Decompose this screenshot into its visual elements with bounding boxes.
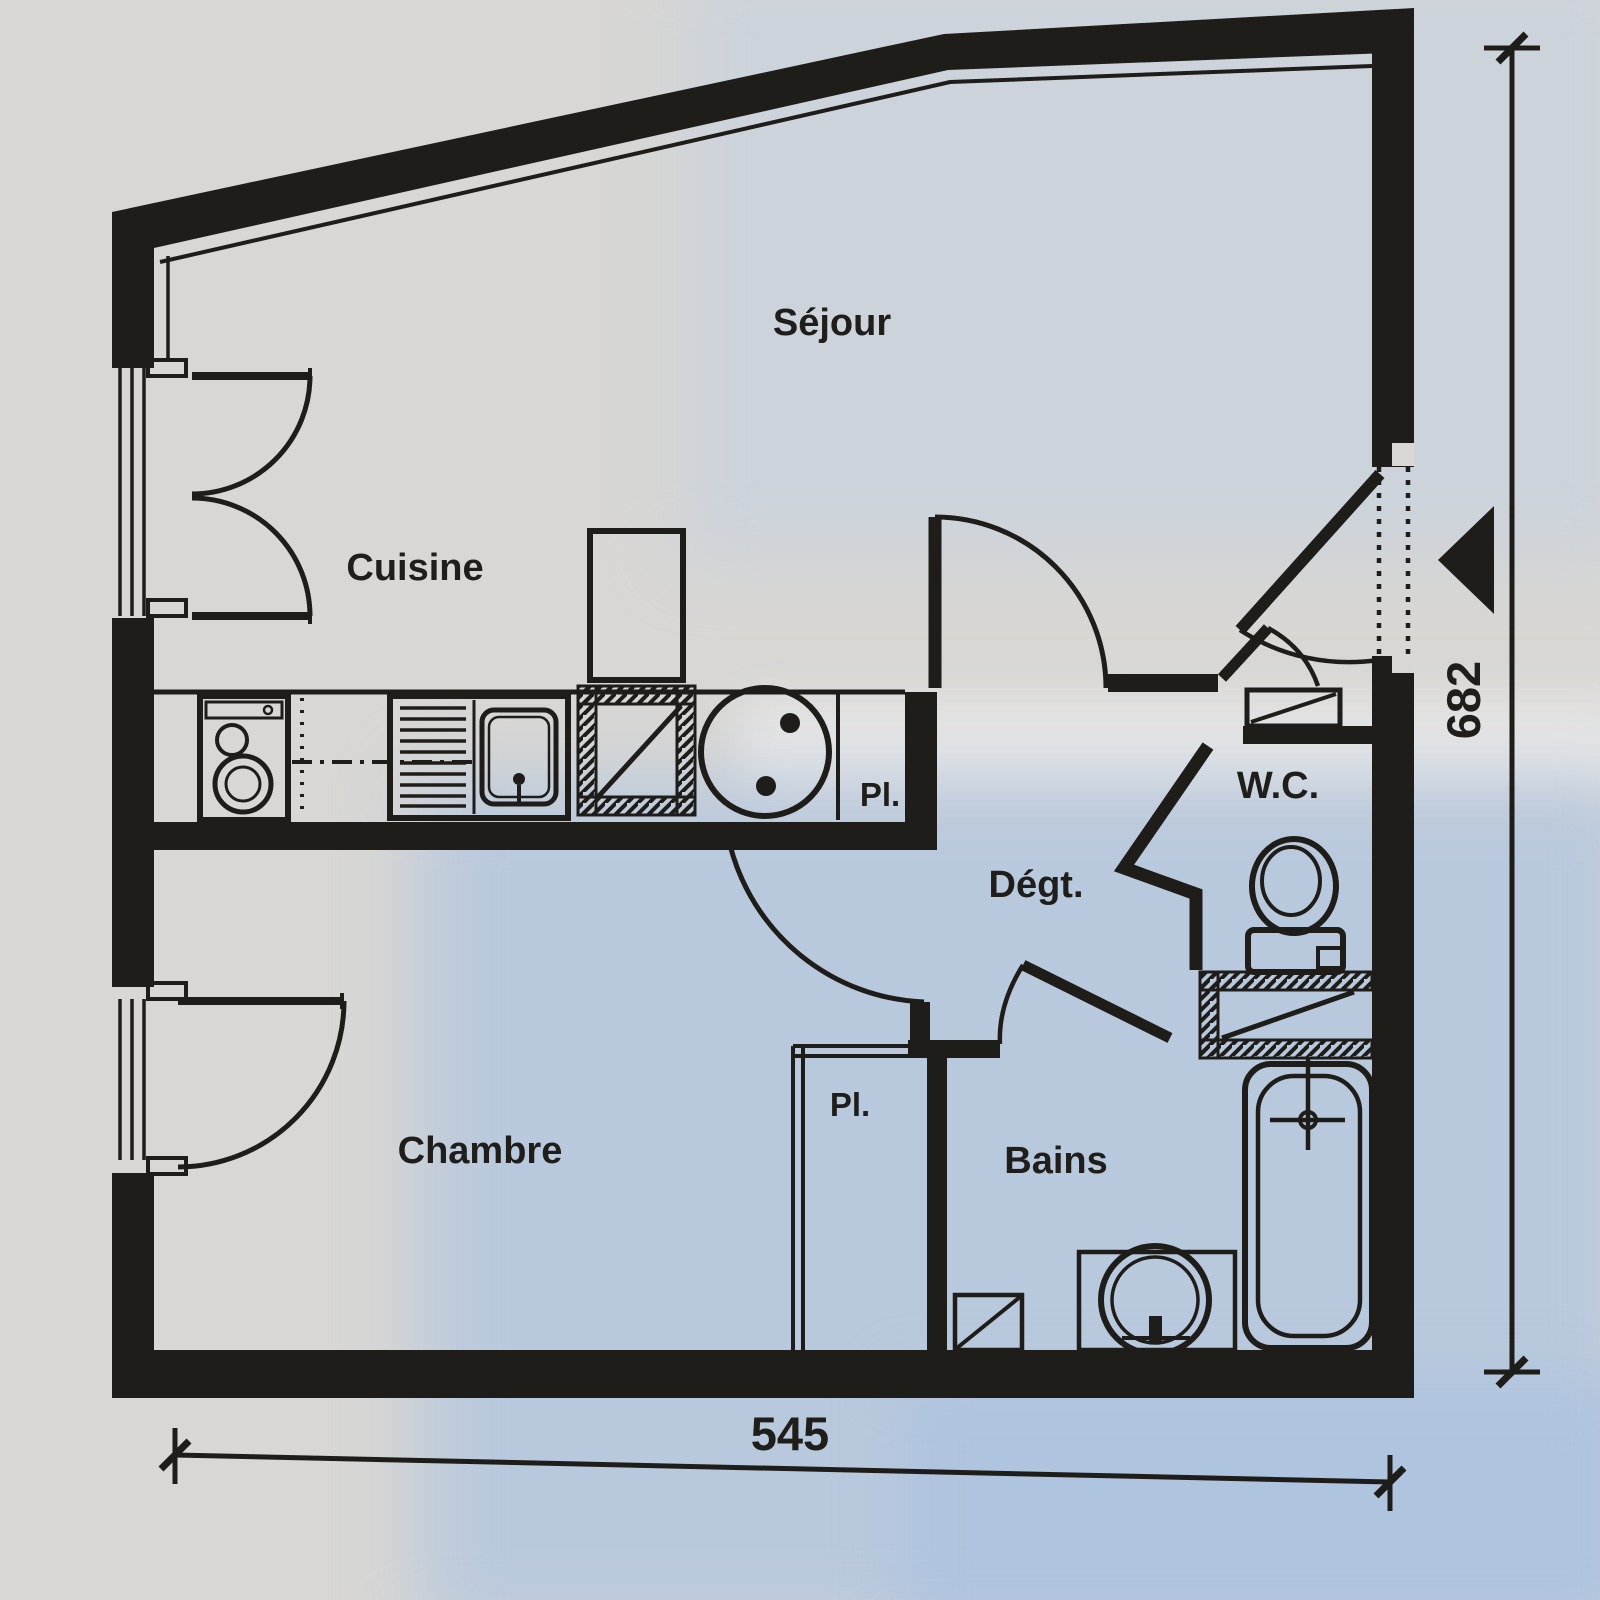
toilet-icon: [1248, 839, 1343, 972]
room-label-placard-chambre: Pl.: [830, 1086, 870, 1123]
right-wall-lower: [1372, 656, 1414, 1398]
room-label-cuisine: Cuisine: [346, 547, 483, 589]
left-wall-middle: [112, 618, 154, 987]
corner-shaft-icon: [955, 1295, 1022, 1350]
bains-door-swing-arc: [1000, 965, 1023, 1044]
entry-jamb-notch-bottom: [1392, 656, 1414, 673]
tall-cabinet-icon: [590, 531, 683, 680]
window-sill-mark: [148, 600, 186, 616]
left-wall-upper: [112, 212, 154, 368]
room-label-bains: Bains: [1004, 1140, 1107, 1182]
washbasin-icon: [1079, 1246, 1235, 1354]
dimension-line-bottom: 545: [161, 1407, 1404, 1511]
closet-bains-wall: [927, 1058, 947, 1350]
door-swing-arc: [178, 1001, 344, 1167]
sink-icon: [390, 696, 568, 818]
wc-chamfer-wall: [1124, 746, 1208, 970]
room-labels: Séjour Cuisine Chambre Dégt. W.C. Bains …: [346, 302, 1319, 1182]
door-swing-arc: [730, 845, 924, 1002]
chambre-french-window: [120, 983, 344, 1174]
room-label-degagement: Dégt.: [989, 864, 1084, 906]
wall-end-dot: [1115, 678, 1125, 688]
door-leaf: [1240, 474, 1380, 630]
kitchen-south-wall: [154, 822, 937, 850]
room-label-chambre: Chambre: [398, 1130, 563, 1172]
cooktop-icon: [701, 688, 829, 816]
room-label-sejour: Séjour: [773, 302, 891, 344]
room-label-wc: W.C.: [1237, 765, 1319, 807]
room-label-placard-cuisine: Pl.: [860, 776, 900, 813]
outer-walls: [112, 8, 1414, 1398]
kitchen-end-wall-column: [905, 692, 937, 850]
door-swing-arc: [935, 517, 1106, 688]
floor-plan-drawing: 682 545 Séjour Cuisine Chambre Dégt. W.C…: [0, 0, 1600, 1600]
washing-machine-icon: [200, 696, 288, 820]
washstand-hatched-unit-icon: [1200, 972, 1372, 1058]
bottom-wall: [112, 1350, 1414, 1398]
entrance-arrow-icon: [1438, 506, 1494, 614]
sejour-degagement-door: [935, 517, 1218, 692]
duct-diagonal: [1251, 694, 1336, 722]
dimension-height-value: 682: [1437, 661, 1490, 739]
bains-north-wall: [908, 1040, 1000, 1058]
drainboard-lines: [400, 708, 466, 806]
wc-north-wall: [1243, 726, 1372, 744]
dimension-line-right: 682: [1437, 34, 1540, 1386]
appliance-slot-hatched-icon: [578, 686, 695, 815]
door-swing-arc: [192, 498, 310, 616]
floor-plan-page: 682 545 Séjour Cuisine Chambre Dégt. W.C…: [0, 0, 1600, 1600]
top-wall: [112, 8, 1414, 248]
door-swing-arc: [192, 376, 310, 494]
kitchen-counter: [154, 531, 937, 850]
bathtub-icon: [1245, 1058, 1372, 1348]
entry-jamb-notch-top: [1392, 443, 1414, 466]
dimension-width-value: 545: [751, 1407, 829, 1460]
chambre-door: [724, 836, 930, 1046]
unit-diagonal: [1222, 992, 1354, 1038]
door-jamb-wall: [910, 1002, 930, 1046]
shaft-diagonal: [957, 1297, 1020, 1348]
bains-door-leaf: [1023, 965, 1170, 1038]
right-wall-upper: [1372, 30, 1414, 467]
